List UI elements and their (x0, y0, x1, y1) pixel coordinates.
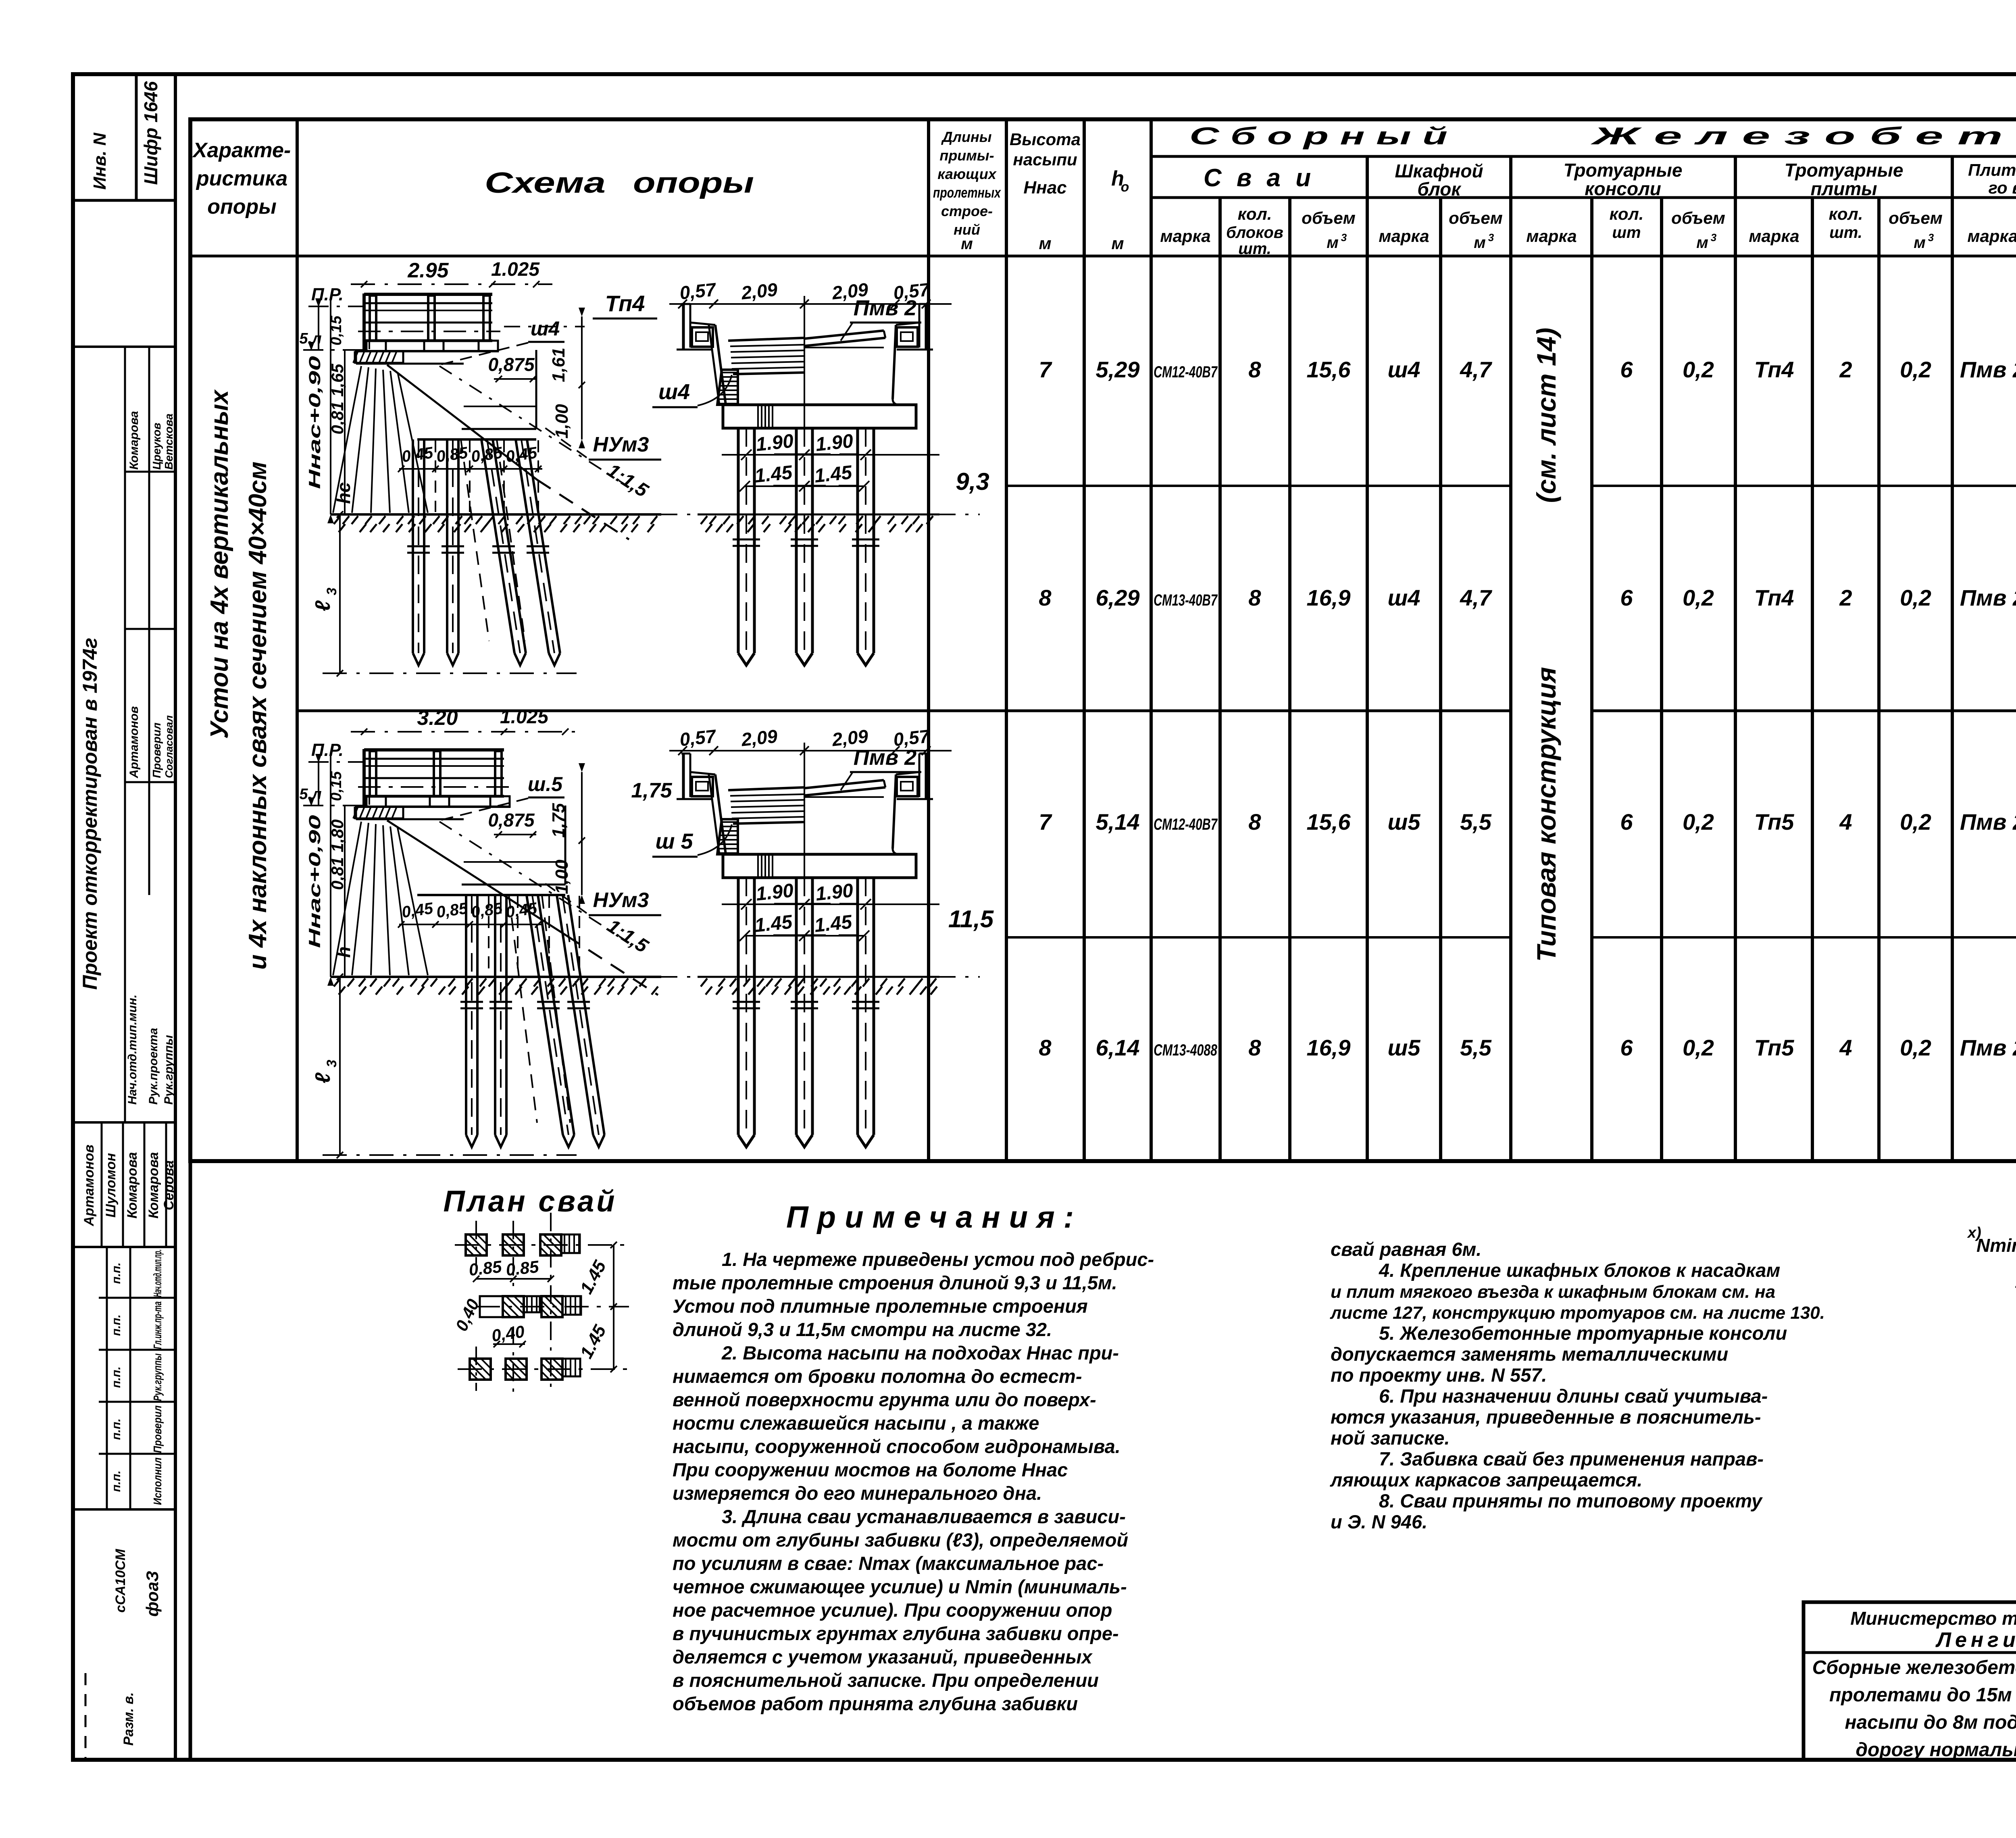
svg-text:Рук.группы: Рук.группы (162, 1035, 175, 1105)
svg-text:6,29: 6,29 (1096, 585, 1140, 610)
svg-text:ш4: ш4 (1388, 585, 1420, 610)
svg-text:1.90: 1.90 (755, 880, 795, 905)
svg-text:ш.5: ш.5 (528, 773, 563, 795)
svg-text:5,5: 5,5 (1460, 809, 1492, 835)
svg-text:2. Высота насыпи на подход: 2. Высота насыпи на подходах Ннас при- (721, 1342, 1119, 1363)
svg-text:1,00: 1,00 (552, 404, 572, 439)
svg-text:1.45: 1.45 (576, 1322, 610, 1361)
svg-text:Пмв 2: Пмв 2 (854, 745, 916, 770)
svg-text:hc: hc (333, 482, 354, 504)
svg-text:8: 8 (1248, 809, 1261, 835)
svg-text:4,7: 4,7 (1460, 357, 1493, 382)
svg-text:НУм3: НУм3 (593, 889, 649, 912)
svg-text:Нач.отд.тип.мин.: Нач.отд.тип.мин. (126, 995, 139, 1105)
svg-text:С б о р н ы й: С б о р н ы й (1189, 123, 1447, 150)
svg-text:1:1,5: 1:1,5 (603, 915, 652, 958)
svg-text:5,5: 5,5 (1460, 1035, 1492, 1060)
svg-text:четное сжимающее усилие) и: четное сжимающее усилие) и Nmin (минимал… (673, 1576, 1127, 1597)
svg-text:м: м (1914, 234, 1926, 252)
svg-text:6: 6 (1620, 809, 1633, 835)
svg-text:0,2: 0,2 (1683, 809, 1714, 835)
svg-text:1.90: 1.90 (755, 430, 795, 456)
svg-text:кол.: кол. (1829, 204, 1863, 223)
svg-text:Гл.инж.пр-та: Гл.инж.пр-та (151, 1301, 164, 1349)
svg-text:кол.: кол. (1610, 204, 1644, 223)
svg-text:Тп4: Тп4 (605, 291, 645, 316)
svg-text:объем: объем (1449, 208, 1503, 227)
svg-text:ности слежавшейся насыпи ,: ности слежавшейся насыпи , а также (673, 1412, 1039, 1434)
svg-text:кол.: кол. (1238, 204, 1272, 223)
svg-text:ш5: ш5 (1388, 1035, 1421, 1060)
svg-text:ное расчетное усилие). При: ное расчетное усилие). При сооружении оп… (673, 1599, 1112, 1621)
svg-text:Характе-: Характе- (192, 139, 291, 162)
svg-text:Тп5: Тп5 (1754, 809, 1795, 835)
svg-text:СМ12-40В7: СМ12-40В7 (1154, 816, 1218, 833)
svg-text:го въезда: го въезда (1989, 178, 2016, 197)
svg-text:деляется с учетом указаний,: деляется с учетом указаний, приведенных (673, 1646, 1093, 1667)
svg-text:16,9: 16,9 (1307, 585, 1351, 610)
svg-text:6,14: 6,14 (1096, 1035, 1140, 1060)
svg-text:измеряется до его минеральн: измеряется до его минерального дна. (673, 1482, 1042, 1504)
svg-text:дорогу нормальной колеи: дорогу нормальной колеи (1856, 1739, 2016, 1761)
svg-text:h: h (333, 946, 354, 958)
svg-text:фоаЗ: фоаЗ (143, 1571, 162, 1617)
svg-text:1. На чертеже приведены устои: 1. На чертеже приведены устои под ребрис… (722, 1249, 1154, 1270)
svg-text:6. При назначении длины с: 6. При назначении длины свай учитыва- (1379, 1385, 1768, 1407)
svg-text:Пмв 2: Пмв 2 (1960, 357, 2016, 382)
svg-text:2: 2 (1839, 585, 1852, 610)
svg-text:сСА10СМ: сСА10СМ (113, 1549, 128, 1613)
svg-text:0.85: 0.85 (505, 1257, 540, 1279)
svg-text:8: 8 (1039, 585, 1052, 610)
svg-text:Ннас: Ннас (1023, 178, 1066, 198)
svg-text:и Э. N 946.: и Э. N 946. (1331, 1511, 1427, 1532)
svg-text:по усилиям в свае: Nmax (мак: по усилиям в свае: Nmax (максимальное ра… (673, 1553, 1104, 1574)
svg-text:Устои на 4х вертикальных: Устои на 4х вертикальных (206, 389, 233, 739)
svg-text:0,2: 0,2 (1900, 809, 1931, 835)
svg-text:1.025: 1.025 (491, 259, 540, 280)
svg-text:объемов работ принята глуби: объемов работ принята глубина забивки (673, 1693, 1078, 1714)
svg-text:пролетных: пролетных (933, 184, 1002, 201)
svg-text:листе 127, конструкцию тротуар: листе 127, конструкцию тротуаров см. на … (1330, 1303, 1825, 1323)
svg-text:Пмв 2: Пмв 2 (1960, 809, 2016, 835)
svg-text:3.20: 3.20 (417, 706, 458, 730)
svg-text:м: м (961, 235, 973, 253)
svg-text:Схема: Схема (485, 167, 606, 199)
svg-text:0,45: 0,45 (401, 899, 435, 922)
svg-text:Исполнил: Исполнил (151, 1457, 164, 1505)
svg-text:ристика: ристика (196, 167, 287, 190)
svg-text:Рук.проекта: Рук.проекта (147, 1028, 160, 1105)
svg-text:свай равная 6м.: свай равная 6м. (1331, 1239, 1481, 1260)
svg-text:насыпи, сооруженной способом: насыпи, сооруженной способом гидронамыва… (673, 1436, 1120, 1457)
svg-text:0,57: 0,57 (679, 725, 718, 750)
svg-text:6: 6 (1620, 1035, 1633, 1060)
svg-text:Шуломон: Шуломон (103, 1153, 119, 1218)
svg-text:нимается от бровки полотна: нимается от бровки полотна до естест- (673, 1365, 1082, 1387)
svg-text:м: м (1696, 234, 1708, 252)
svg-text:1.45: 1.45 (813, 462, 854, 487)
svg-text:марка: марка (1749, 227, 1799, 246)
svg-text:Комарова: Комарова (146, 1152, 161, 1219)
svg-text:Инв. N: Инв. N (90, 132, 110, 189)
svg-text:3: 3 (1928, 231, 1934, 244)
svg-text:1.90: 1.90 (814, 880, 854, 905)
svg-text:0,2: 0,2 (1900, 357, 1931, 382)
svg-text:блок: блок (1417, 179, 1462, 200)
svg-text:Тп4: Тп4 (1754, 357, 1794, 382)
svg-text:длиной 9,3 и 11,5м смотри н: длиной 9,3 и 11,5м смотри на листе 32. (673, 1319, 1052, 1340)
svg-text:Ннас+0,90: Ннас+0,90 (306, 815, 324, 948)
svg-text:п.п.: п.п. (110, 1366, 123, 1388)
svg-text:ш4: ш4 (531, 317, 560, 340)
svg-text:0,2: 0,2 (1900, 585, 1931, 610)
svg-text:0,2: 0,2 (1683, 585, 1714, 610)
svg-text:8: 8 (1039, 1035, 1052, 1060)
svg-text:Тп5: Тп5 (1754, 1035, 1795, 1060)
svg-text:1,00: 1,00 (552, 860, 572, 894)
svg-text:п.п.: п.п. (110, 1418, 123, 1440)
svg-text:0,45: 0,45 (401, 444, 435, 466)
svg-text:При сооружении мостов на б: При сооружении мостов на болоте Ннас (673, 1459, 1068, 1480)
svg-text:0.85: 0.85 (468, 1257, 503, 1279)
svg-text:1,75: 1,75 (631, 779, 672, 802)
svg-text:строе-: строе- (941, 203, 993, 219)
svg-text:15,6: 15,6 (1307, 357, 1351, 382)
svg-text:3: 3 (1488, 231, 1494, 244)
svg-text:Нач.отд.тип.пр.: Нач.отд.тип.пр. (151, 1249, 164, 1297)
svg-text:Пмв 2: Пмв 2 (1960, 585, 2016, 610)
svg-text:5,29: 5,29 (1096, 357, 1140, 382)
svg-text:шт: шт (1612, 224, 1641, 241)
svg-text:Пмв 2: Пмв 2 (854, 296, 916, 320)
svg-text:Шифр 1646: Шифр 1646 (140, 81, 161, 185)
svg-text:Примечания:: Примечания: (786, 1200, 1083, 1234)
svg-text:Тротуарные: Тротуарные (1785, 160, 1904, 181)
svg-text:Проверил: Проверил (151, 1405, 164, 1453)
svg-text:0,85: 0,85 (435, 899, 469, 922)
svg-text:СМ12-40В7: СМ12-40В7 (1154, 363, 1218, 381)
svg-text:1,75: 1,75 (549, 803, 569, 838)
svg-text:марка: марка (1160, 227, 1210, 246)
svg-text:8: 8 (1248, 1035, 1261, 1060)
svg-text:опоры: опоры (633, 167, 754, 199)
svg-text:Разм. в.: Разм. в. (121, 1692, 136, 1746)
svg-text:Тротуарные: Тротуарные (1564, 160, 1683, 181)
svg-text:x): x) (1967, 1224, 1981, 1241)
svg-text:ш4: ш4 (658, 380, 690, 404)
svg-text:4: 4 (1839, 1035, 1852, 1060)
svg-text:м: м (1039, 234, 1051, 253)
svg-text:и плит мягкого въезда к шкафны: и плит мягкого въезда к шкафным блокам с… (1331, 1282, 1775, 1302)
svg-text:4: 4 (1839, 809, 1852, 835)
svg-text:2: 2 (1839, 357, 1852, 382)
svg-text:марка: марка (1379, 227, 1429, 246)
svg-text:ш 5: ш 5 (655, 829, 693, 853)
svg-text:шт.: шт. (1238, 240, 1271, 258)
svg-text:опоры: опоры (207, 195, 276, 219)
svg-text:Сборные железобетонные мосты: Сборные железобетонные мосты (1812, 1657, 2016, 1678)
svg-text:3: 3 (324, 1060, 339, 1067)
svg-text:3: 3 (324, 587, 339, 595)
svg-text:плиты: плиты (1811, 178, 1877, 199)
svg-text:в пояснительной записке. При: в пояснительной записке. При определении (673, 1669, 1099, 1691)
svg-text:o: o (1121, 179, 1129, 195)
svg-text:2.95: 2.95 (407, 259, 449, 282)
svg-text:0,81 1,65: 0,81 1,65 (328, 364, 347, 435)
svg-text:м: м (1327, 234, 1339, 252)
svg-text:Длины: Длины (941, 129, 992, 145)
svg-text:1.45: 1.45 (754, 911, 794, 937)
svg-text:Проект откорректирован в: Проект откорректирован в 1974г (79, 638, 101, 990)
svg-text:марка: марка (1526, 227, 1577, 246)
svg-text:16,9: 16,9 (1307, 1035, 1351, 1060)
svg-text:0,2: 0,2 (1683, 357, 1714, 382)
svg-text:ляющих каркасов запрещается.: ляющих каркасов запрещается. (1330, 1469, 1642, 1490)
svg-text:Тп4: Тп4 (1754, 585, 1794, 610)
svg-text:4,7: 4,7 (1460, 585, 1493, 610)
svg-text:п.п.: п.п. (110, 1470, 123, 1492)
svg-text:6: 6 (1620, 357, 1633, 382)
svg-text:НУм3: НУм3 (593, 433, 649, 456)
svg-text:м: м (1474, 234, 1486, 252)
svg-text:и 4х наклонных сваях сечен: и 4х наклонных сваях сечением 40×40см (244, 462, 272, 970)
svg-text:объем: объем (1671, 208, 1725, 227)
svg-text:0,2: 0,2 (1683, 1035, 1714, 1060)
svg-text:Комарова: Комарова (127, 411, 141, 470)
svg-text:3: 3 (1711, 231, 1717, 244)
svg-text:Артамонов: Артамонов (127, 706, 141, 778)
svg-text:5. Железобетонные тротуарны: 5. Железобетонные тротуарные консоли (1379, 1322, 1787, 1344)
svg-text:Nmin со знаком „-“ выдергиваю: Nmin со знаком „-“ выдергивающее (1976, 1235, 2016, 1256)
svg-text:Комарова: Комарова (125, 1152, 140, 1219)
svg-text:мости от глубины забивки (: мости от глубины забивки (ℓ3), определяе… (673, 1529, 1128, 1551)
svg-text:0,40: 0,40 (452, 1296, 483, 1334)
svg-text:Серова: Серова (161, 1160, 177, 1210)
svg-text:7. Забивка свай без приме: 7. Забивка свай без применения направ- (1379, 1448, 1764, 1470)
svg-text:0,45: 0,45 (505, 899, 539, 922)
svg-text:1,61: 1,61 (549, 348, 569, 382)
svg-text:насыпи до 8м под железную: насыпи до 8м под железную (1845, 1712, 2016, 1733)
svg-text:венной поверхности грунта и: венной поверхности грунта или до поверх- (673, 1389, 1096, 1410)
svg-text:Цреуков: Цреуков (150, 423, 163, 470)
svg-text:Проверил: Проверил (150, 722, 163, 778)
svg-text:п.п.: п.п. (110, 1314, 123, 1336)
svg-text:3: 3 (1341, 231, 1347, 244)
svg-text:ℓ: ℓ (311, 1072, 335, 1083)
svg-text:0,40: 0,40 (490, 1322, 525, 1345)
svg-text:7: 7 (1039, 809, 1052, 835)
svg-text:пролетами до 15м при высоте: пролетами до 15м при высоте (1829, 1684, 2016, 1706)
svg-text:шт.: шт. (1829, 224, 1862, 241)
svg-text:Артамонов: Артамонов (81, 1145, 97, 1226)
svg-text:тые пролетные строения длиной: тые пролетные строения длиной 9,3 и 11,5… (673, 1272, 1117, 1293)
svg-text:СМ13-40В7: СМ13-40В7 (1154, 591, 1218, 609)
svg-text:0,45: 0,45 (505, 444, 539, 466)
svg-text:в пучинистых грунтах глубина: в пучинистых грунтах глубина забивки опр… (673, 1623, 1119, 1644)
svg-text:п.п.: п.п. (110, 1262, 123, 1284)
svg-text:Высота: Высота (1010, 130, 1081, 149)
svg-text:8. Сваи приняты по типово: 8. Сваи приняты по типовому проекту (1379, 1490, 1763, 1511)
svg-text:Министерство транспортного с: Министерство транспортного строительства (1850, 1608, 2016, 1629)
svg-text:0,85: 0,85 (470, 444, 504, 466)
svg-text:СМ13-4088: СМ13-4088 (1154, 1041, 1218, 1059)
svg-text:2,09: 2,09 (740, 726, 779, 750)
svg-text:8: 8 (1248, 357, 1261, 382)
svg-text:Плиты мягко-: Плиты мягко- (1968, 160, 2016, 179)
svg-text:ш5: ш5 (1388, 809, 1421, 835)
svg-text:Ленгипротрансмост: Ленгипротрансмост (1935, 1628, 2016, 1652)
svg-text:11,5: 11,5 (948, 905, 994, 933)
svg-text:6: 6 (1620, 585, 1633, 610)
svg-text:9,3: 9,3 (956, 468, 989, 495)
svg-text:Ж е л е з о б е т о н: Ж е л е з о б е т о н (1590, 123, 2016, 150)
svg-text:кающих: кающих (937, 166, 997, 182)
svg-text:допускается заменять металли: допускается заменять металлическими (1331, 1343, 1728, 1365)
svg-text:0,875: 0,875 (488, 810, 535, 831)
svg-text:1.025: 1.025 (500, 706, 549, 728)
svg-text:0,875: 0,875 (488, 354, 535, 375)
svg-text:консоли: консоли (1585, 178, 1661, 199)
svg-text:м: м (1111, 234, 1124, 253)
svg-text:0,57: 0,57 (679, 279, 718, 303)
svg-text:Ветскова: Ветскова (162, 414, 175, 470)
svg-text:4. Крепление шкафных блоко: 4. Крепление шкафных блоков к насадкам (1379, 1259, 1780, 1281)
svg-text:П.Р.: П.Р. (311, 285, 344, 304)
svg-text:объем: объем (1302, 208, 1356, 227)
svg-text:ются указания, приведенные: ются указания, приведенные в пояснитель- (1331, 1406, 1761, 1428)
svg-text:Типовая конструкция: Типовая конструкция (1531, 667, 1561, 962)
svg-text:1.90: 1.90 (814, 430, 854, 456)
svg-text:насыпи: насыпи (1013, 150, 1077, 169)
svg-text:7: 7 (1039, 357, 1052, 382)
svg-text:Согласовал: Согласовал (163, 715, 175, 778)
svg-text:Рук.группы: Рук.группы (151, 1353, 164, 1401)
svg-text:0,2: 0,2 (1900, 1035, 1931, 1060)
svg-text:П.Р.: П.Р. (311, 740, 344, 760)
svg-text:Ннас+0,90: Ннас+0,90 (306, 356, 324, 489)
svg-text:5,14: 5,14 (1096, 809, 1140, 835)
svg-text:1.45: 1.45 (754, 462, 794, 487)
svg-text:8: 8 (1248, 585, 1261, 610)
svg-text:1.45: 1.45 (813, 911, 854, 937)
svg-text:объем: объем (1889, 208, 1943, 227)
svg-text:ℓ: ℓ (311, 600, 335, 611)
svg-text:1.45: 1.45 (576, 1257, 610, 1297)
svg-text:(см. лист 14): (см. лист 14) (1531, 328, 1561, 503)
svg-text:Устои под плитные пролетные: Устои под плитные пролетные строения (673, 1295, 1088, 1317)
svg-text:2,09: 2,09 (740, 279, 779, 304)
svg-text:Пмв 2: Пмв 2 (1960, 1035, 2016, 1060)
svg-text:ш4: ш4 (1388, 357, 1420, 382)
svg-text:План свай: План свай (444, 1184, 617, 1218)
svg-text:15,6: 15,6 (1307, 809, 1351, 835)
svg-text:примы-: примы- (939, 147, 994, 164)
svg-text:блоков: блоков (1226, 224, 1283, 241)
svg-text:ной записке.: ной записке. (1331, 1427, 1450, 1449)
svg-text:1:1,5: 1:1,5 (603, 460, 652, 502)
svg-text:0,85: 0,85 (470, 899, 504, 922)
svg-text:марка: марка (1967, 227, 2016, 246)
svg-text:по проекту инв. N 557.: по проекту инв. N 557. (1331, 1364, 1547, 1386)
svg-text:С в а и: С в а и (1204, 164, 1315, 192)
svg-text:3. Длина сваи устанавливает: 3. Длина сваи устанавливается в зависи- (722, 1506, 1126, 1527)
svg-text:0,81 1,80: 0,81 1,80 (328, 819, 347, 890)
